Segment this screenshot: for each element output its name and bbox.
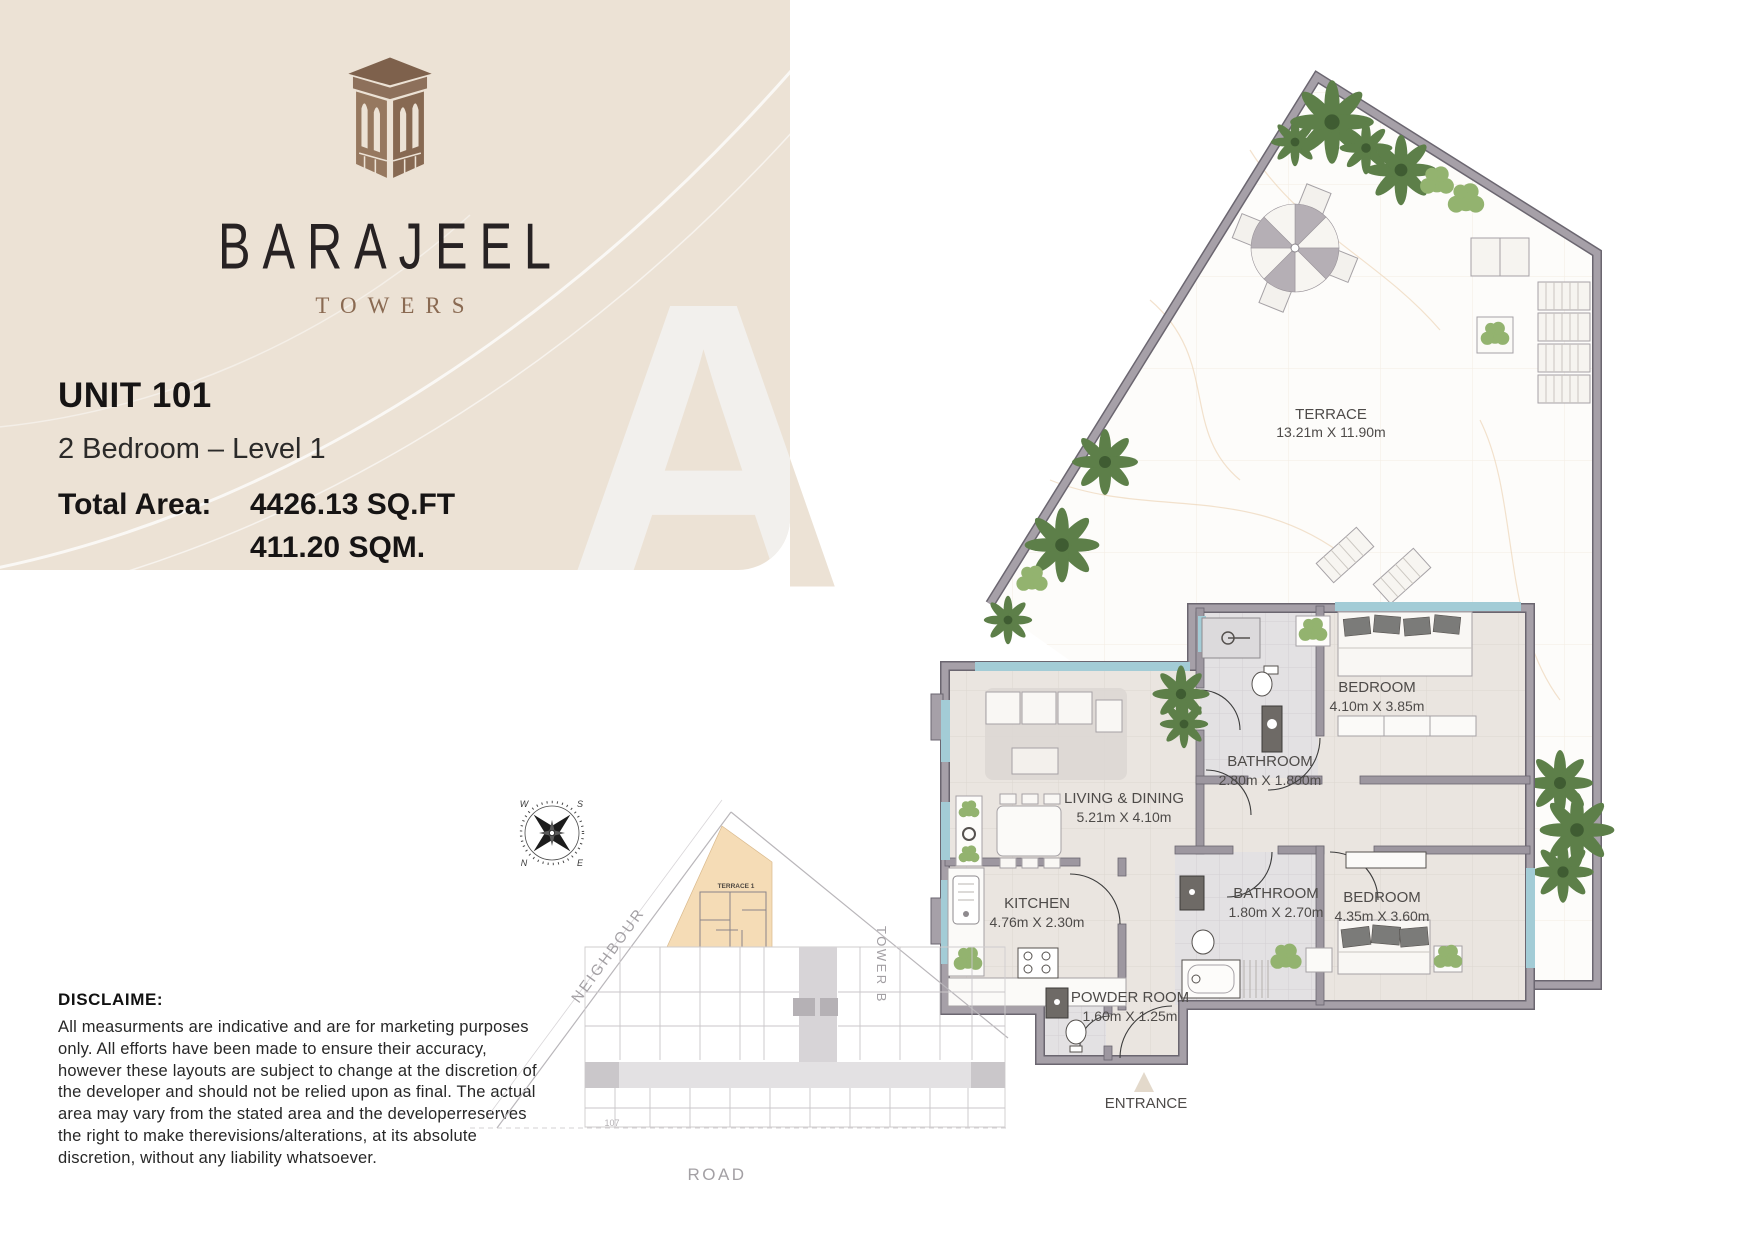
kitchen-label: KITCHEN	[1004, 895, 1070, 912]
compass-n: N	[521, 858, 528, 868]
compass-w: W	[520, 799, 530, 809]
bedroom1-dims: 4.10m X 3.85m	[1330, 698, 1425, 714]
floor-plan: TERRACE 13.21m X 11.90m LIVING & DINING …	[931, 77, 1614, 1112]
living-furniture	[985, 688, 1127, 780]
entrance-marker	[1134, 1072, 1154, 1092]
compass-e: E	[577, 858, 584, 868]
terrace-dims: 13.21m X 11.90m	[1276, 424, 1385, 440]
entrance-label: ENTRANCE	[1105, 1095, 1188, 1112]
bathroom1-dims: 2.80m X 1.800m	[1219, 772, 1322, 788]
powder-dims: 1.60m X 1.25m	[1083, 1008, 1178, 1024]
balcony-planter-strip	[956, 796, 982, 866]
bathroom1-label: BATHROOM	[1227, 753, 1313, 770]
terrace-label: TERRACE	[1295, 406, 1367, 423]
site-unit-number: 107	[604, 1118, 619, 1128]
bathroom2-label: BATHROOM	[1233, 885, 1319, 902]
site-neighbour-label: NEIGHBOUR	[568, 905, 648, 1007]
compass-s: S	[577, 799, 583, 809]
terrace-planter	[1477, 317, 1513, 353]
kitchen-dims: 4.76m X 2.30m	[990, 914, 1085, 930]
bedroom2-label: BEDROOM	[1343, 889, 1421, 906]
site-towerb-label: TOWER B	[874, 926, 889, 1004]
bedroom1-label: BEDROOM	[1338, 679, 1416, 696]
site-terrace-tag: TERRACE 1	[718, 883, 755, 890]
site-plan: TERRACE 1 W S N E	[470, 796, 1010, 1184]
powder-label: POWDER ROOM	[1071, 989, 1189, 1006]
compass-icon: W S N E	[515, 796, 589, 870]
bedroom2-dims: 4.35m X 3.60m	[1335, 908, 1430, 924]
plan-canvas: TERRACE 13.21m X 11.90m LIVING & DINING …	[0, 0, 1754, 1241]
site-road-label: ROAD	[687, 1165, 746, 1184]
bathroom2-dims: 1.80m X 2.70m	[1229, 904, 1324, 920]
living-dims: 5.21m X 4.10m	[1077, 809, 1172, 825]
terrace-table	[1471, 238, 1529, 276]
living-label: LIVING & DINING	[1064, 790, 1184, 807]
site-unit-highlight: TERRACE 1	[667, 826, 772, 947]
